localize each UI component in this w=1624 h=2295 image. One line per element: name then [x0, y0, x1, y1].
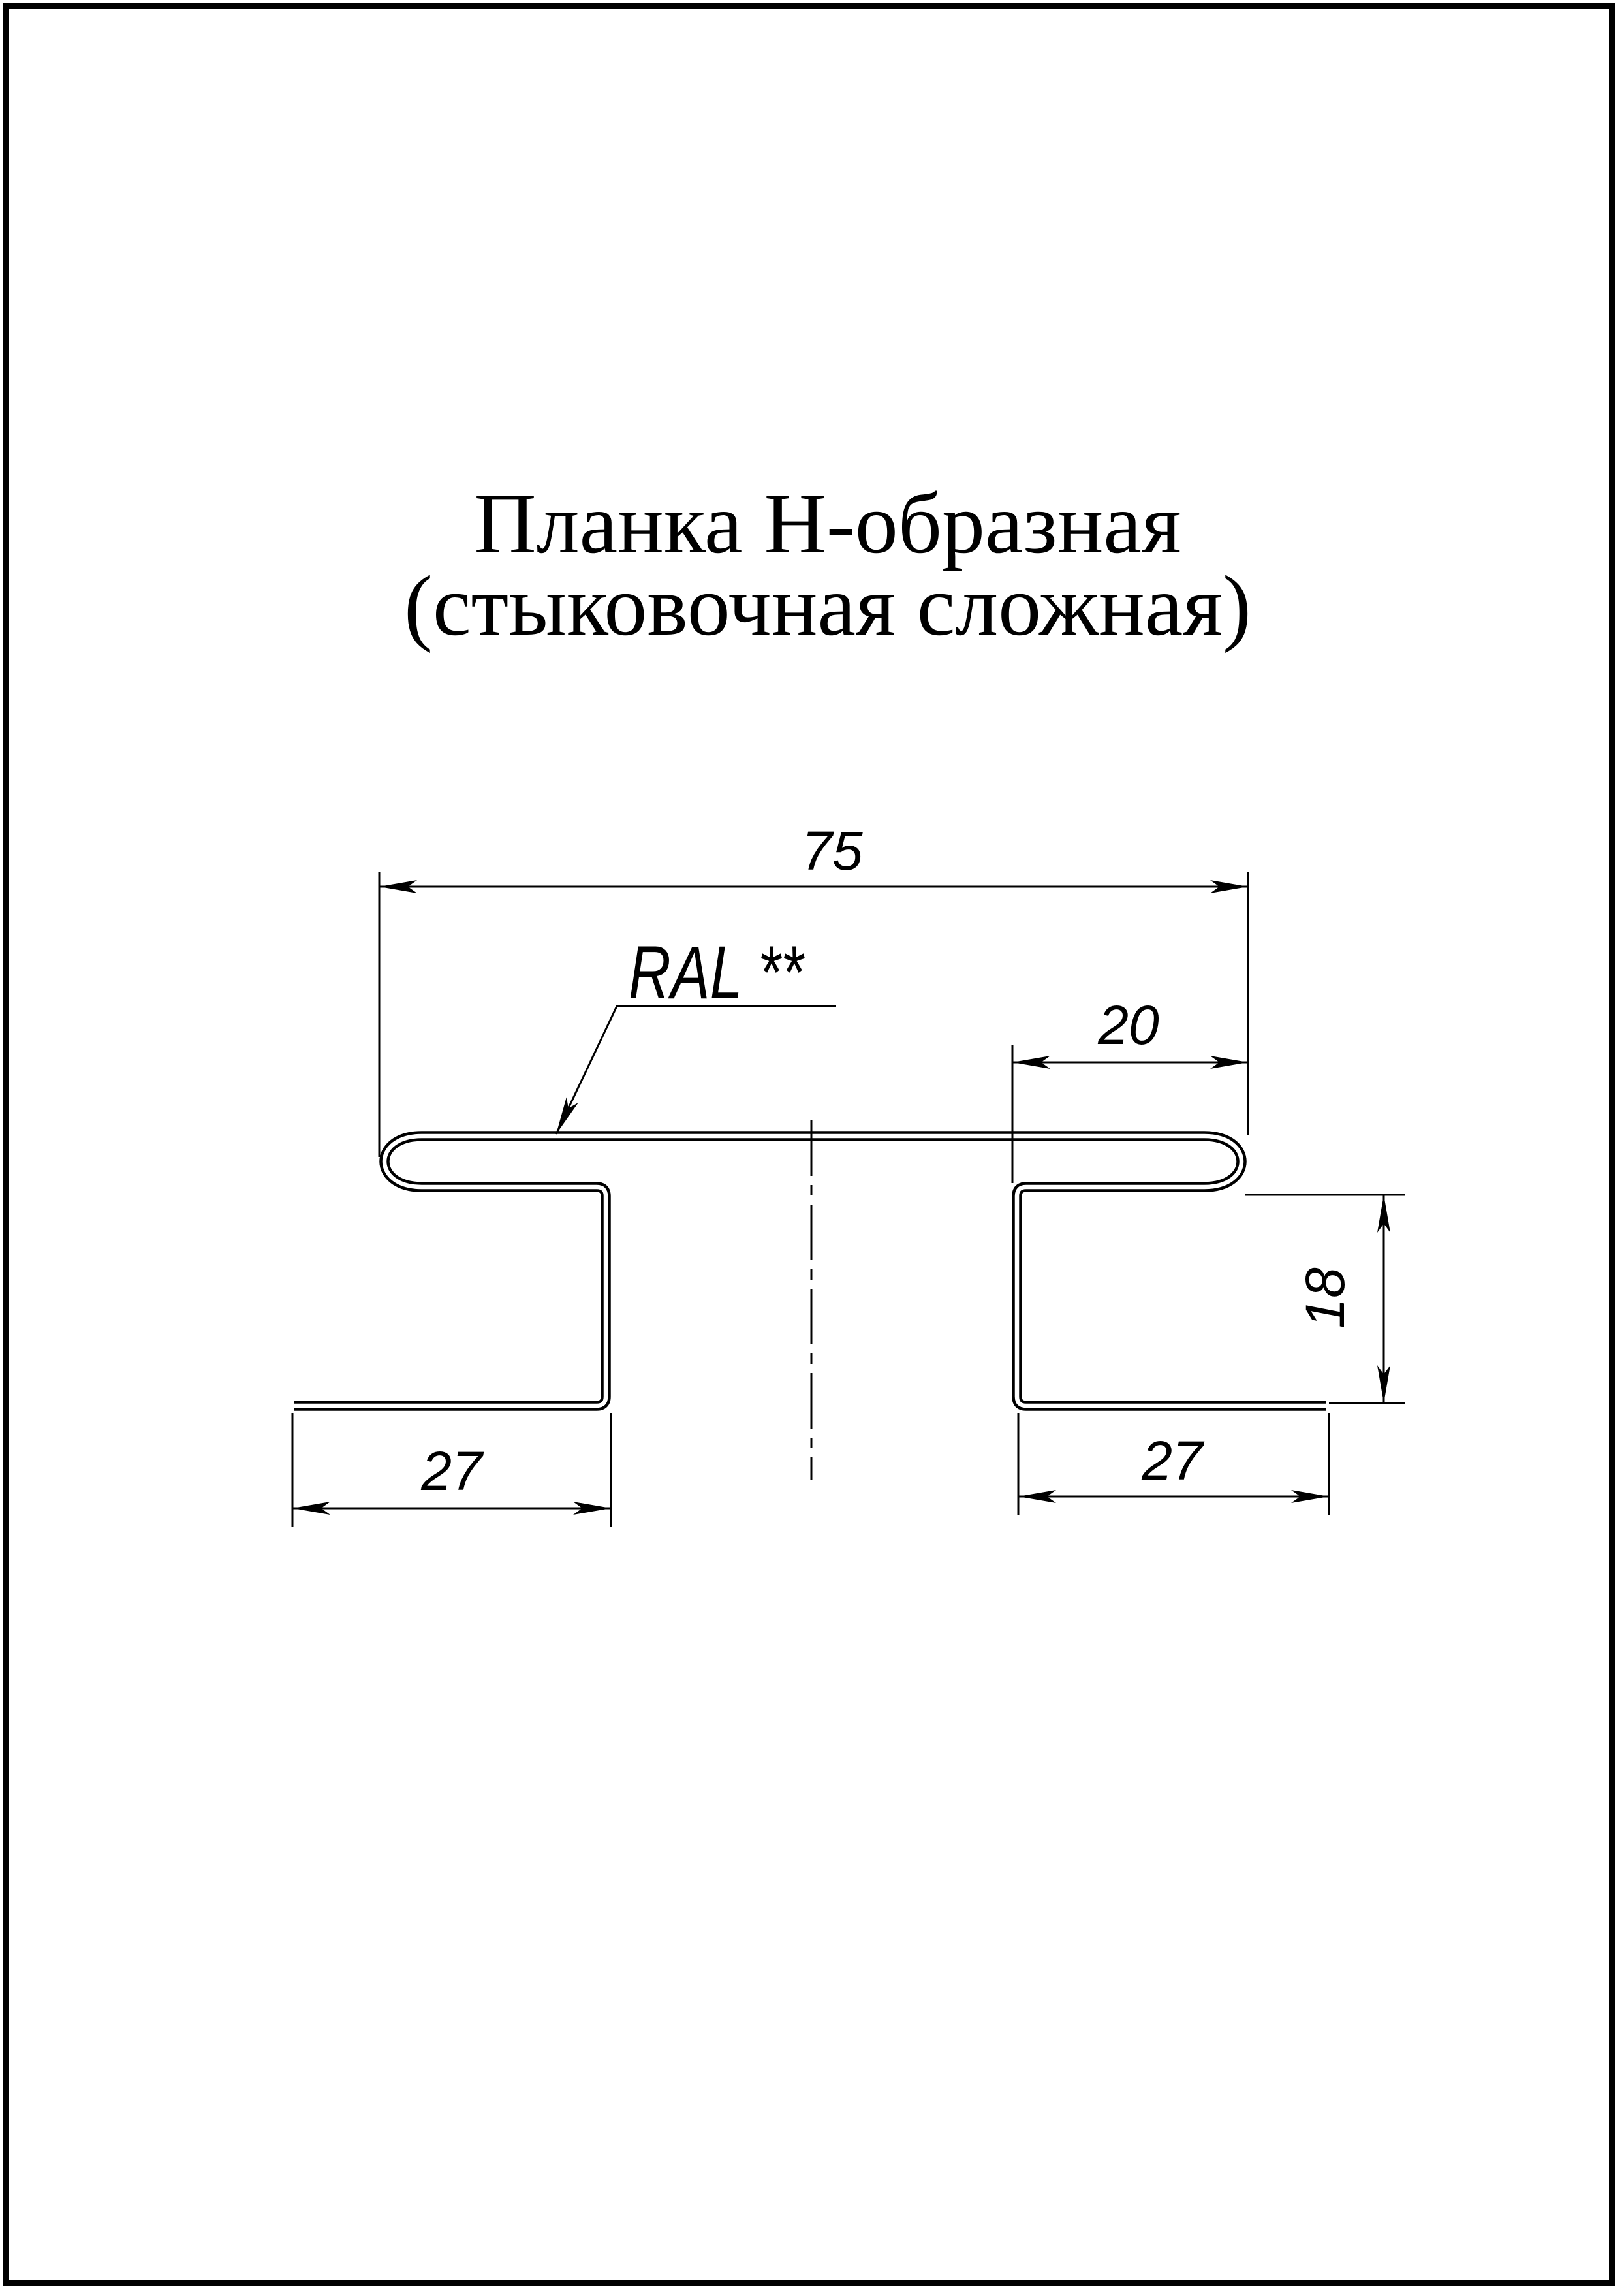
dim-value-27-right: 27 — [1141, 1430, 1205, 1491]
dim-value-27-left: 27 — [420, 1440, 484, 1502]
leader-line — [556, 1006, 836, 1134]
dimension-right-fold — [1012, 1045, 1248, 1183]
dim-value-20: 20 — [1097, 994, 1159, 1056]
dim-value-18: 18 — [1294, 1267, 1356, 1329]
dim-value-75: 75 — [802, 820, 863, 881]
profile-drawing: 75 20 18 27 — [0, 0, 1624, 2295]
coating-label: RAL ** — [629, 930, 805, 1014]
arrowhead — [550, 1097, 578, 1137]
drawing-sheet: Планка Н-образная (стыковочная сложная) … — [0, 0, 1624, 2295]
coating-leader — [550, 1006, 836, 1137]
